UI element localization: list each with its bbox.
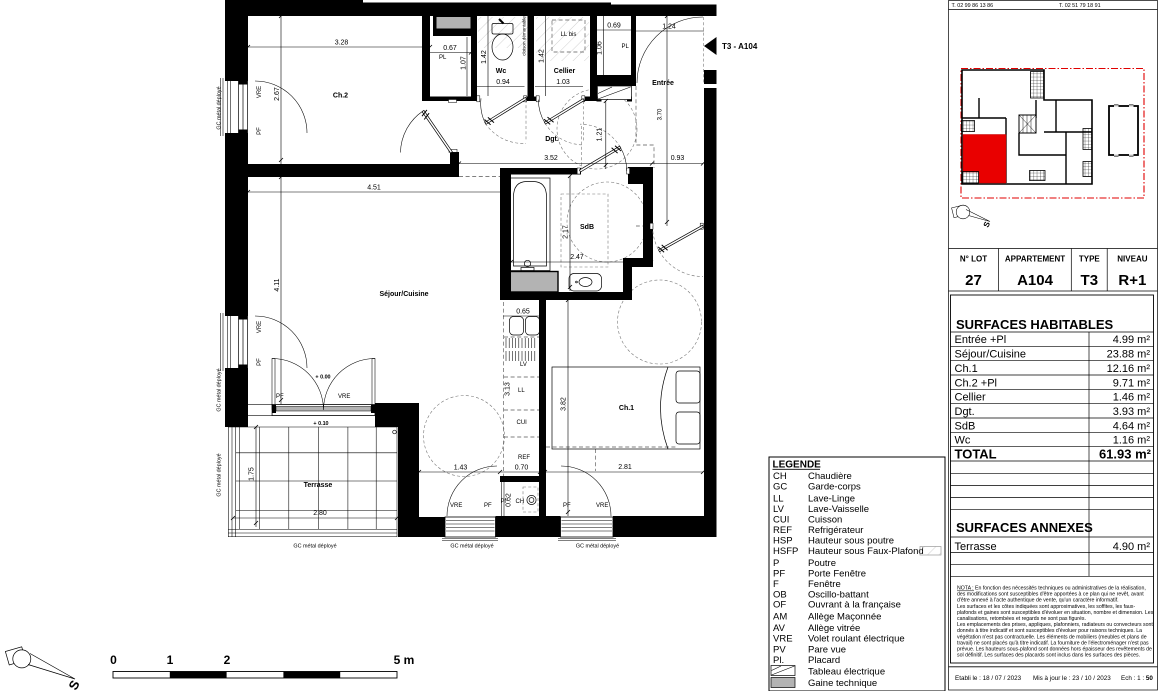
svg-text:Pare vue: Pare vue — [808, 645, 846, 656]
svg-text:0: 0 — [110, 653, 117, 667]
svg-text:Fenêtre: Fenêtre — [808, 579, 841, 590]
svg-text:4.90 m²: 4.90 m² — [1113, 541, 1151, 553]
svg-text:LV: LV — [520, 362, 527, 368]
svg-text:2.47: 2.47 — [570, 254, 584, 261]
svg-text:TYPE: TYPE — [1079, 255, 1101, 264]
svg-text:CH: CH — [516, 499, 525, 505]
svg-text:Etabli le : 18 / 07 / 2023: Etabli le : 18 / 07 / 2023 — [955, 675, 1022, 682]
svg-text:Séjour/Cuisine: Séjour/Cuisine — [955, 349, 1027, 361]
svg-text:9.71 m²: 9.71 m² — [1113, 377, 1151, 389]
svg-text:Gaine technique: Gaine technique — [808, 678, 877, 689]
svg-text:Pl.: Pl. — [773, 655, 784, 666]
svg-text:2.80: 2.80 — [313, 510, 327, 517]
svg-text:Porte Fenêtre: Porte Fenêtre — [808, 569, 866, 580]
svg-text:3.93 m²: 3.93 m² — [1113, 406, 1151, 418]
svg-text:Terrasse: Terrasse — [304, 482, 333, 489]
svg-text:Mis à jour le : 23 / 10 / 2023: Mis à jour le : 23 / 10 / 2023 — [1033, 675, 1111, 682]
svg-text:prévue. Les hauteurs sous-plaf: prévue. Les hauteurs sous-plafond sont d… — [957, 647, 1152, 653]
svg-text:23.88 m²: 23.88 m² — [1107, 349, 1151, 361]
svg-text:VRE: VRE — [450, 503, 462, 509]
svg-text:Tableau électrique: Tableau électrique — [808, 667, 885, 678]
svg-text:+ 0.10: + 0.10 — [313, 421, 328, 427]
svg-text:A104: A104 — [1017, 272, 1054, 289]
svg-text:AV: AV — [773, 623, 786, 634]
svg-text:des modifications sont suscept: des modifications sont susceptibles d'êt… — [957, 592, 1144, 598]
svg-text:GC métal déployé: GC métal déployé — [293, 544, 336, 550]
svg-text:Ch.1: Ch.1 — [619, 405, 634, 412]
svg-text:GC métal déployé: GC métal déployé — [217, 368, 223, 411]
svg-text:0.67: 0.67 — [443, 45, 457, 52]
svg-text:1.07: 1.07 — [461, 56, 468, 70]
svg-text:cloison démontable: cloison démontable — [522, 16, 527, 56]
svg-text:Volet roulant électrique: Volet roulant électrique — [808, 634, 905, 645]
svg-text:3.70: 3.70 — [658, 108, 664, 120]
svg-text:2: 2 — [224, 653, 231, 667]
svg-text:Cuisson: Cuisson — [808, 515, 842, 526]
svg-text:Ch.2 +Pl: Ch.2 +Pl — [955, 377, 998, 389]
svg-text:Séjour/Cuisine: Séjour/Cuisine — [379, 291, 428, 298]
svg-text:donnés à titre indicatif et so: donnés à titre indicatif et sont suscept… — [957, 628, 1142, 634]
svg-text:2.67: 2.67 — [274, 87, 281, 101]
svg-text:Chaudière: Chaudière — [808, 471, 852, 482]
svg-text:VRE: VRE — [257, 321, 263, 333]
svg-text:3.52: 3.52 — [544, 155, 558, 162]
svg-text:PF: PF — [773, 569, 785, 580]
svg-text:PF: PF — [257, 127, 263, 135]
svg-text:GC métal déployé: GC métal déployé — [217, 453, 223, 496]
svg-text:1.75: 1.75 — [249, 467, 256, 481]
svg-text:T3: T3 — [1081, 272, 1099, 289]
svg-text:VRE: VRE — [338, 394, 350, 400]
svg-text:Poutre: Poutre — [808, 558, 836, 569]
svg-text:Dgt.: Dgt. — [955, 406, 975, 418]
svg-text:T. 02 51 79 18 91: T. 02 51 79 18 91 — [1059, 3, 1101, 9]
svg-text:61.93 m²: 61.93 m² — [1099, 447, 1152, 462]
svg-text:Wc: Wc — [496, 68, 507, 75]
svg-text:Entrée +Pl: Entrée +Pl — [955, 334, 1007, 346]
svg-text:Hauteur sous Faux-Plafond: Hauteur sous Faux-Plafond — [808, 546, 924, 557]
svg-text:T. 02 99 86 13 86: T. 02 99 86 13 86 — [952, 3, 994, 9]
svg-text:3.28: 3.28 — [335, 40, 349, 47]
svg-text:GC métal déployé: GC métal déployé — [576, 544, 619, 550]
svg-text:5 m: 5 m — [394, 653, 415, 667]
svg-text:Ch.1: Ch.1 — [955, 363, 978, 375]
svg-text:HSP: HSP — [773, 536, 793, 547]
svg-text:T3 - A104: T3 - A104 — [722, 42, 758, 51]
svg-text:0.94: 0.94 — [496, 79, 510, 86]
svg-text:N° LOT: N° LOT — [960, 255, 987, 264]
svg-text:R+1: R+1 — [1118, 272, 1146, 289]
svg-text:PL: PL — [622, 44, 630, 50]
svg-text:Les emplacements des prises, a: Les emplacements des prises, appliques, … — [957, 622, 1153, 628]
svg-text:OF: OF — [773, 600, 786, 611]
svg-text:Placard: Placard — [808, 655, 840, 666]
svg-text:VRE: VRE — [773, 634, 793, 645]
svg-text:4.64 m²: 4.64 m² — [1113, 420, 1151, 432]
svg-text:Dgt.: Dgt. — [545, 136, 559, 143]
svg-text:F: F — [773, 579, 779, 590]
svg-text:PL: PL — [439, 55, 447, 61]
svg-text:1.21: 1.21 — [597, 128, 604, 142]
svg-text:Lave-Vaisselle: Lave-Vaisselle — [808, 504, 869, 515]
svg-text:Cellier: Cellier — [554, 68, 576, 75]
svg-text:PF: PF — [257, 358, 263, 366]
svg-text:Les surfaces et les côtes indi: Les surfaces et les côtes indiquées sont… — [957, 604, 1135, 610]
svg-text:TOTAL: TOTAL — [955, 447, 997, 462]
svg-text:SURFACES HABITABLES: SURFACES HABITABLES — [956, 317, 1114, 332]
svg-text:1.03: 1.03 — [556, 79, 570, 86]
svg-text:Hauteur sous poutre: Hauteur sous poutre — [808, 536, 894, 547]
svg-text:GC métal déployé: GC métal déployé — [450, 544, 493, 550]
svg-text:canalisations, retombées et re: canalisations, retombées et regards ne s… — [957, 616, 1086, 622]
svg-text:LL bis: LL bis — [561, 32, 577, 38]
svg-text:PF: PF — [563, 503, 571, 509]
svg-text:Refrigérateur: Refrigérateur — [808, 525, 863, 536]
svg-text:SURFACES ANNEXES: SURFACES ANNEXES — [956, 520, 1093, 535]
svg-text:0.62: 0.62 — [506, 493, 513, 507]
svg-text:CUI: CUI — [517, 420, 528, 426]
svg-text:4.99 m²: 4.99 m² — [1113, 334, 1151, 346]
svg-text:d'être annexé à l'acte authent: d'être annexé à l'acte authentique de ve… — [957, 598, 1119, 604]
svg-text:1.42: 1.42 — [481, 50, 488, 64]
svg-text:LL: LL — [518, 388, 525, 394]
svg-text:Terrasse: Terrasse — [955, 541, 997, 553]
svg-text:Ch.2: Ch.2 — [333, 93, 348, 100]
svg-text:VRE: VRE — [596, 503, 608, 509]
svg-text:12.16 m²: 12.16 m² — [1107, 363, 1151, 375]
svg-text:0.93: 0.93 — [671, 155, 685, 162]
svg-text:Garde-corps: Garde-corps — [808, 482, 861, 493]
svg-text:4.11: 4.11 — [274, 278, 281, 291]
svg-text:Allège Maçonnée: Allège Maçonnée — [808, 612, 881, 623]
svg-text:travail) ne sont placés qu'à t: travail) ne sont placés qu'à titre indic… — [957, 640, 1149, 646]
svg-text:LV: LV — [773, 504, 785, 515]
svg-text:SdB: SdB — [580, 224, 594, 231]
svg-text:CH: CH — [773, 471, 787, 482]
svg-text:LL: LL — [773, 494, 784, 505]
svg-text:VRE: VRE — [257, 86, 263, 98]
svg-text:PV: PV — [773, 645, 786, 656]
svg-text:HSFP: HSFP — [773, 546, 798, 557]
svg-text:Pl: Pl — [501, 499, 506, 505]
svg-text:0.69: 0.69 — [607, 23, 621, 30]
svg-text:végétation n'est pas contractu: végétation n'est pas contractuelle. Les … — [957, 634, 1147, 640]
svg-text:Lave-Linge: Lave-Linge — [808, 494, 855, 505]
svg-text:Ouvrant à la française: Ouvrant à la française — [808, 600, 901, 611]
svg-text:sol définitif. Les surfaces de: sol définitif. Les surfaces des placards… — [957, 653, 1140, 659]
svg-text:1.06: 1.06 — [597, 41, 604, 55]
svg-text:NOTA : En fonction des nécessi: NOTA : En fonction des nécessités techni… — [957, 586, 1146, 592]
svg-text:0.65: 0.65 — [516, 309, 530, 316]
svg-text:Wc: Wc — [955, 435, 971, 447]
svg-text:Cellier: Cellier — [955, 392, 987, 404]
svg-text:1.24: 1.24 — [662, 24, 676, 31]
svg-text:CUI: CUI — [773, 515, 789, 526]
svg-text:Ech : 1 : 50: Ech : 1 : 50 — [1121, 675, 1153, 682]
svg-text:AM: AM — [773, 612, 787, 623]
svg-text:GC: GC — [773, 482, 787, 493]
svg-text:REF: REF — [518, 455, 530, 461]
svg-text:1.46 m²: 1.46 m² — [1113, 392, 1151, 404]
svg-text:2.81: 2.81 — [618, 464, 632, 471]
svg-text:Allège vitrée: Allège vitrée — [808, 623, 860, 634]
svg-text:REF: REF — [773, 525, 792, 536]
svg-text:NIVEAU: NIVEAU — [1117, 255, 1147, 264]
svg-text:1.43: 1.43 — [454, 465, 468, 472]
svg-text:plafonds et gaines sont suscep: plafonds et gaines sont susceptibles d'é… — [957, 610, 1154, 616]
svg-text:27: 27 — [965, 272, 982, 289]
svg-text:1.16 m²: 1.16 m² — [1113, 435, 1151, 447]
svg-text:3.13: 3.13 — [505, 382, 512, 396]
svg-text:SdB: SdB — [955, 420, 976, 432]
svg-text:+ 0.00: + 0.00 — [315, 375, 330, 381]
svg-text:0.70: 0.70 — [515, 465, 529, 472]
svg-text:PF: PF — [276, 394, 284, 400]
svg-text:2.17: 2.17 — [563, 225, 570, 239]
svg-text:4.51: 4.51 — [367, 185, 381, 192]
svg-text:LEGENDE: LEGENDE — [773, 460, 822, 471]
svg-text:GC métal déployé: GC métal déployé — [217, 86, 223, 129]
svg-text:1: 1 — [167, 653, 174, 667]
svg-text:P: P — [773, 558, 779, 569]
svg-text:3.82: 3.82 — [561, 397, 568, 411]
svg-text:Entrée: Entrée — [652, 80, 674, 87]
svg-text:1.42: 1.42 — [539, 49, 546, 63]
svg-text:PF: PF — [484, 503, 492, 509]
svg-text:APPARTEMENT: APPARTEMENT — [1005, 255, 1065, 264]
